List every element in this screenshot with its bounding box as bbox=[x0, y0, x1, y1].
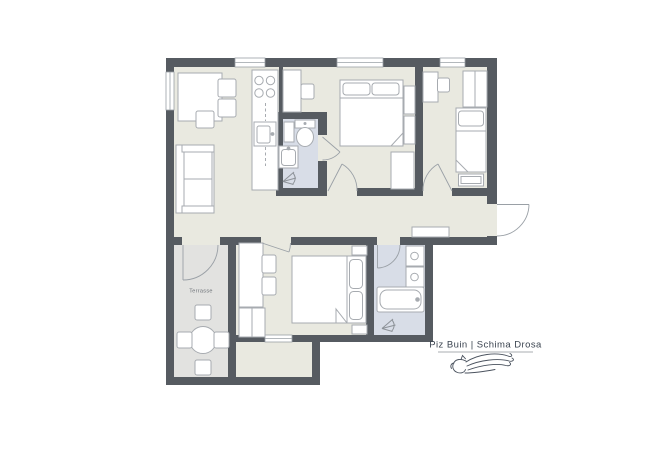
wc-cabinet bbox=[284, 122, 294, 142]
dresser bbox=[391, 152, 414, 189]
wall bbox=[283, 112, 327, 119]
wall bbox=[366, 245, 374, 335]
dining-chair bbox=[196, 111, 214, 128]
window bbox=[235, 58, 265, 67]
nightstand bbox=[352, 325, 367, 334]
desk-chair bbox=[262, 255, 276, 273]
terrace-chair bbox=[195, 360, 211, 375]
brand: Piz Buin | Schima Drosa bbox=[429, 340, 542, 374]
wall bbox=[279, 67, 283, 112]
window bbox=[166, 72, 174, 110]
double-bed bbox=[292, 256, 366, 323]
brand-title: Piz Buin | Schima Drosa bbox=[429, 340, 542, 351]
wall bbox=[166, 237, 182, 245]
horse-logo-icon bbox=[451, 354, 514, 374]
luggage-bench bbox=[459, 174, 484, 186]
sideboard bbox=[412, 227, 449, 237]
floor-extension bbox=[236, 342, 312, 377]
desk bbox=[283, 70, 301, 112]
wall bbox=[425, 237, 433, 342]
dining-chair bbox=[218, 79, 236, 97]
floor-plan-page: Terrasse Piz Buin | Schima Drosa bbox=[0, 0, 650, 450]
washbasin-cabinet bbox=[406, 246, 424, 266]
wall bbox=[487, 58, 497, 204]
desk-chair bbox=[438, 78, 450, 92]
wardrobe bbox=[239, 308, 265, 337]
wall bbox=[265, 58, 337, 67]
wall bbox=[166, 245, 174, 385]
wall bbox=[415, 67, 423, 196]
wall bbox=[166, 110, 174, 245]
bedroom3-furniture bbox=[239, 243, 367, 337]
wall bbox=[291, 237, 377, 245]
window bbox=[440, 58, 465, 67]
terrace-chair bbox=[195, 305, 211, 320]
terrace-chair bbox=[214, 332, 229, 348]
floor-entrance-gap bbox=[487, 204, 497, 236]
dining-chair bbox=[218, 99, 236, 117]
wall bbox=[487, 236, 497, 245]
wall bbox=[383, 58, 440, 67]
desk-chair bbox=[262, 277, 276, 295]
labels: Terrasse bbox=[189, 289, 213, 295]
double-bed bbox=[340, 80, 403, 146]
desk bbox=[239, 243, 263, 307]
washbasin-cabinet bbox=[406, 267, 424, 287]
wardrobe bbox=[463, 71, 487, 107]
wall bbox=[452, 188, 487, 196]
wall bbox=[400, 237, 433, 245]
single-bed bbox=[456, 108, 486, 172]
toilet-icon bbox=[295, 120, 315, 147]
kitchen-furniture bbox=[252, 70, 278, 190]
floor-plan-svg: Terrasse Piz Buin | Schima Drosa bbox=[0, 0, 650, 450]
round-table bbox=[190, 327, 217, 354]
wall bbox=[166, 58, 174, 72]
terrace-label: Terrasse bbox=[189, 289, 213, 295]
window bbox=[337, 58, 383, 67]
window bbox=[265, 335, 292, 342]
wall bbox=[318, 161, 327, 196]
wall bbox=[292, 335, 433, 342]
desk bbox=[423, 72, 438, 102]
wall bbox=[312, 342, 320, 377]
wall bbox=[166, 58, 235, 67]
wall bbox=[228, 245, 236, 377]
desk-chair bbox=[301, 84, 314, 99]
wall bbox=[166, 377, 320, 385]
wall bbox=[318, 119, 327, 135]
nightstand bbox=[352, 246, 367, 255]
bathtub-icon bbox=[377, 287, 424, 312]
terrace-chair bbox=[177, 332, 192, 348]
sofa bbox=[176, 145, 214, 213]
entrance-door-arc bbox=[497, 205, 529, 237]
washbasin-icon bbox=[279, 146, 298, 168]
kitchen-sink-icon bbox=[254, 122, 276, 146]
